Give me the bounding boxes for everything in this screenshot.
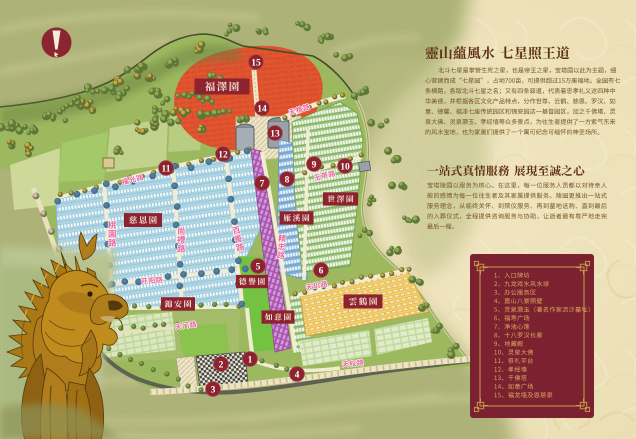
- svg-text:2: 2: [219, 360, 224, 370]
- svg-text:3: 3: [211, 385, 216, 395]
- svg-text:11: 11: [162, 164, 171, 174]
- svg-text:4: 4: [295, 370, 300, 380]
- svg-text:10: 10: [340, 162, 350, 172]
- svg-text:15: 15: [251, 58, 261, 68]
- svg-text:9: 9: [312, 160, 317, 170]
- svg-text:1: 1: [248, 355, 253, 365]
- svg-text:13: 13: [270, 129, 280, 139]
- svg-text:6: 6: [319, 266, 324, 276]
- svg-text:5: 5: [256, 262, 261, 272]
- svg-text:8: 8: [285, 175, 290, 185]
- svg-text:7: 7: [260, 179, 265, 189]
- svg-text:12: 12: [218, 150, 228, 160]
- svg-text:14: 14: [257, 104, 267, 114]
